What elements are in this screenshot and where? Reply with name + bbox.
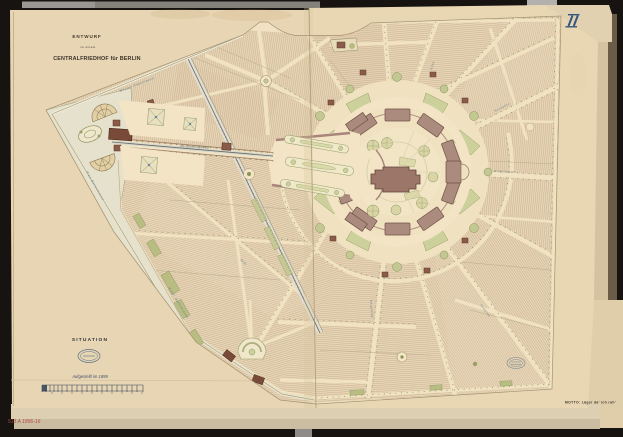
svg-text:Ringstrasse: Ringstrasse xyxy=(494,169,515,174)
svg-text:513 A 1896-16: 513 A 1896-16 xyxy=(8,419,41,425)
svg-text:CENTRALFRIEDHOF für BERLIN: CENTRALFRIEDHOF für BERLIN xyxy=(53,56,140,62)
svg-text:MOTTO: Läger da' ich ruh': MOTTO: Läger da' ich ruh' xyxy=(565,401,616,405)
svg-text:SITUATION: SITUATION xyxy=(72,337,108,343)
svg-text:Aufgestellt im 1899: Aufgestellt im 1899 xyxy=(71,374,108,379)
svg-text:zu einem: zu einem xyxy=(80,45,95,49)
svg-text:ENTWURF: ENTWURF xyxy=(72,34,101,39)
